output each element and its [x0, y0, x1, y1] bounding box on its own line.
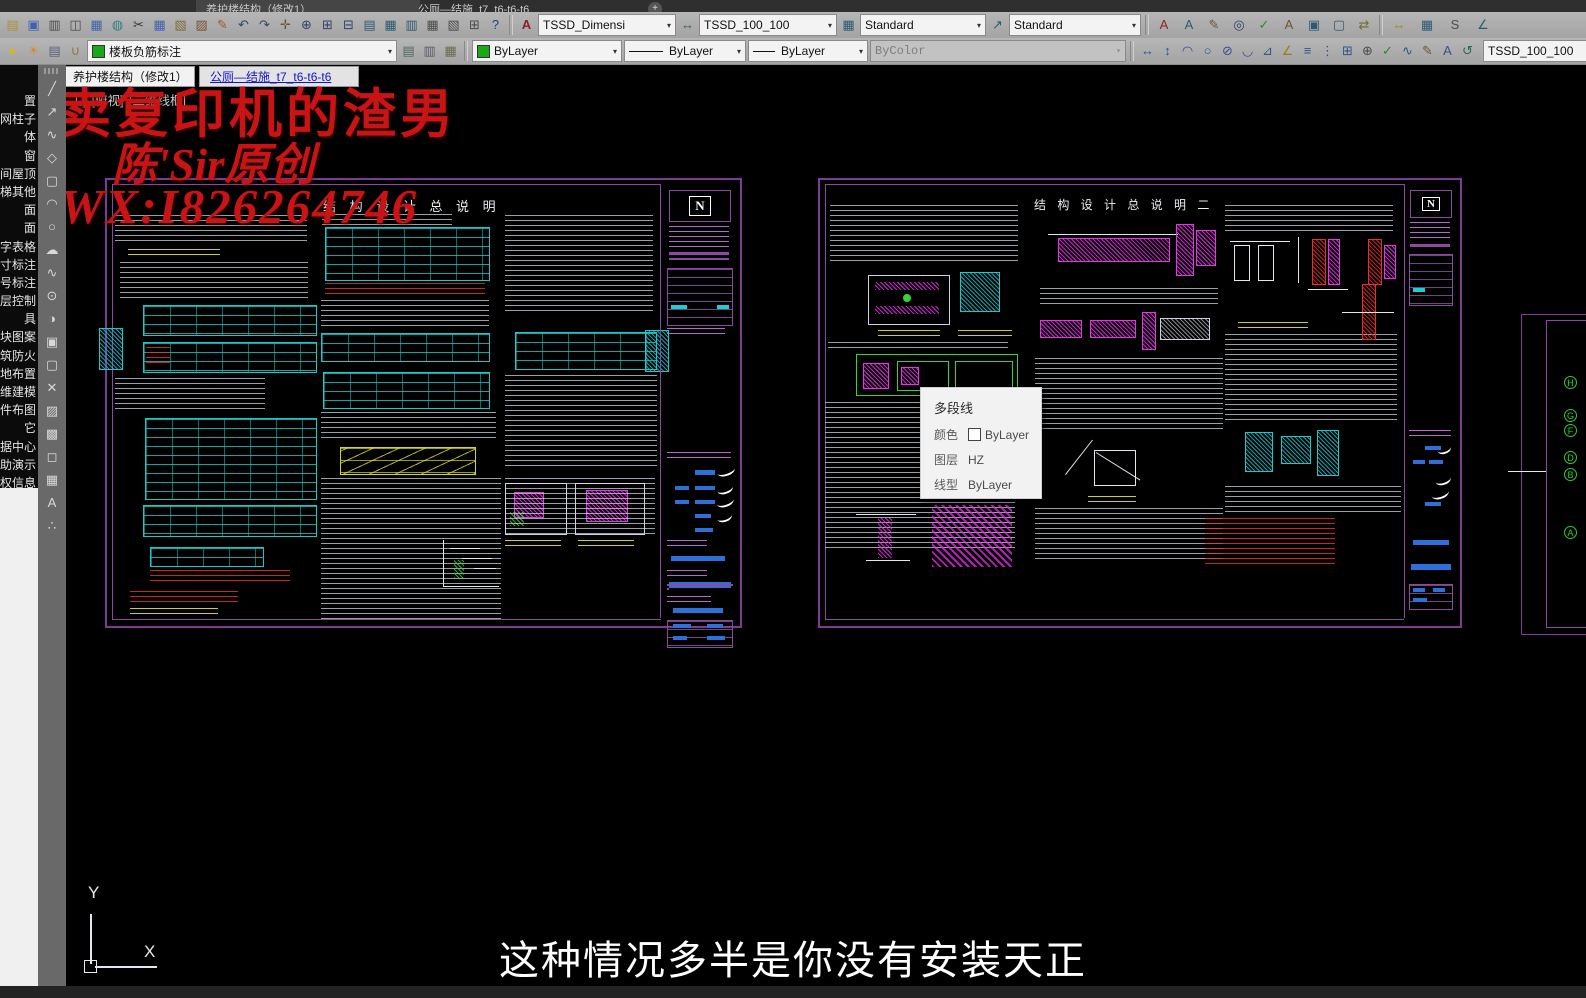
color-dropdown[interactable]: ByLayer▾: [472, 40, 622, 62]
titleblock-project-bar: [671, 556, 725, 561]
watermark-line-3: WX:I826264746: [60, 178, 418, 235]
sheet1-red-note-2: [130, 591, 238, 605]
screen-menu-item[interactable]: 寸标注: [0, 256, 38, 274]
ellipse-arc-icon[interactable]: ◑: [41, 308, 63, 330]
titleblock-cyan-bar-1: [671, 305, 687, 309]
zoom-realtime-icon[interactable]: ⊕: [297, 15, 316, 35]
entity-rollover-tooltip: 多段线 颜色 ByLayer 图层 HZ 线型 ByLayer: [920, 387, 1042, 499]
sheet1-titleblock: N: [660, 184, 737, 618]
sheet1-table-seismic: [143, 305, 317, 336]
grid-bubble: H: [1564, 376, 1577, 389]
mleader-style-manager-icon[interactable]: ↗: [988, 15, 1007, 35]
ucs-x-axis: [95, 966, 157, 968]
text-style-manager-icon[interactable]: A: [517, 15, 536, 35]
dim-aligned-icon[interactable]: ↕: [1158, 41, 1177, 61]
dim-angular-icon[interactable]: ⊿: [1258, 41, 1277, 61]
grid-bubble: A: [1564, 526, 1577, 539]
sheet2-notes-mid-2: [1035, 358, 1223, 430]
dim-style-manager-icon[interactable]: ↔: [678, 15, 697, 35]
mtext-a-icon[interactable]: A: [41, 492, 63, 514]
screen-menu-item[interactable]: 窗: [0, 147, 38, 165]
layer-dropdown[interactable]: 楼板负筋标注▾: [87, 40, 397, 62]
tooltip-color-label: 颜色: [934, 426, 968, 443]
move-text-icon[interactable]: ⇄: [1353, 15, 1375, 35]
cut-icon[interactable]: ✂: [129, 15, 148, 35]
sheet2-detail-cyan-group: [1245, 428, 1341, 478]
dim-space-icon[interactable]: ⊞: [1338, 41, 1357, 61]
screen-menu-item[interactable]: 维建模: [0, 383, 38, 401]
paste-block-icon[interactable]: ▨: [192, 15, 211, 35]
sheet2-detail-triangle: [1086, 436, 1144, 490]
sheet2-caption-1: [878, 330, 940, 337]
eplot-icon[interactable]: ▦: [87, 15, 106, 35]
sheet1-yellow-note-2: [130, 608, 218, 616]
draw-toolbar: ╱↗∿◇▢◠○☁∿⊙◑▣▢✕▨▩◻▦A∴: [38, 64, 66, 986]
open-icon[interactable]: ▤: [3, 15, 22, 35]
dim-jog-line-icon[interactable]: ∿: [1398, 41, 1417, 61]
application-window: 养护楼结构（修改1） 公厕—结施_t7_t6-t6-t6 [-] [俯视] [二…: [0, 0, 1586, 998]
xline-icon[interactable]: ↗: [41, 101, 63, 123]
grid-bubble: F: [1564, 424, 1577, 437]
spell-check-icon[interactable]: ✓: [1253, 15, 1275, 35]
screen-menu-item[interactable]: 面: [0, 201, 38, 219]
screen-menu-item[interactable]: 具: [0, 310, 38, 328]
sheet2-title: 结 构 设 计 总 说 明 二: [1034, 196, 1213, 213]
circle-icon[interactable]: ○: [41, 216, 63, 238]
sheet1-table-atlas: [143, 505, 317, 537]
line-icon[interactable]: ╱: [41, 78, 63, 100]
tssd-copy-icon[interactable]: ▦: [1415, 15, 1439, 35]
screen-menu-item[interactable]: 据中心: [0, 438, 38, 456]
sheet1-notes-right-3: [505, 478, 655, 536]
layers-properties-toolbar: ●☀▤∪ 楼板负筋标注▾ ▤▥▦ ByLayer▾ ByLayer▾ ByLay…: [0, 38, 1586, 65]
design-center-icon[interactable]: ▦: [381, 15, 400, 35]
sheet1-detail-a-caption: [505, 540, 561, 546]
screen-menu-item[interactable]: 块图案: [0, 328, 38, 346]
sheet1-table-codes: [145, 418, 317, 500]
sheet2-caption-4: [1238, 322, 1308, 329]
titleblock2-logo: N: [1422, 197, 1440, 211]
sheet1-margin-tag-left: [99, 328, 123, 370]
grid-bubble: B: [1564, 468, 1577, 481]
tooltip-layer-value: HZ: [968, 453, 984, 467]
sheet-set-manager-icon[interactable]: ▦: [423, 15, 442, 35]
linetype-dropdown[interactable]: ByLayer▾: [624, 40, 746, 62]
toolbar-separator: [509, 15, 513, 35]
layer-on-bulb-icon[interactable]: ●: [3, 41, 22, 61]
dim-radius-icon[interactable]: ○: [1198, 41, 1217, 61]
sheet1-red-note-1: [150, 570, 290, 584]
mleader-style-dropdown[interactable]: Standard▾: [1009, 14, 1141, 36]
plot-icon[interactable]: ▥: [45, 15, 64, 35]
lineweight-value: ByLayer: [781, 44, 825, 58]
grid-bubble: D: [1564, 451, 1577, 464]
tssd-toolbar-icons: ↔▦S∠: [1387, 15, 1495, 35]
text-style-icon[interactable]: A: [1153, 15, 1175, 35]
tssd-angle-icon[interactable]: ∠: [1471, 15, 1495, 35]
titleblock-company-text: [669, 226, 729, 248]
sheet2-detail-floor: [1038, 310, 1216, 352]
region-icon[interactable]: ◻: [41, 446, 63, 468]
screen-menu-item[interactable]: 号标注: [0, 274, 38, 292]
dim-text-edit-icon[interactable]: A: [1438, 41, 1457, 61]
layer-states-icon[interactable]: ▤: [399, 41, 418, 61]
polygon-icon[interactable]: ◇: [41, 147, 63, 169]
dim-check-icon[interactable]: ✓: [1378, 41, 1397, 61]
find-text-icon[interactable]: ◎: [1228, 15, 1250, 35]
sheet2-notes-right-2: [1225, 334, 1397, 422]
screen-menu-item[interactable]: 地布置: [0, 365, 38, 383]
divide-icon[interactable]: ∴: [41, 515, 63, 537]
linetype-value: ByLayer: [669, 44, 713, 58]
sheet1-table-red-cell: [146, 347, 170, 365]
publish-icon[interactable]: ◍: [108, 15, 127, 35]
sheet2-detail-pier: [1338, 282, 1398, 340]
dim-break-icon[interactable]: ⊕: [1358, 41, 1377, 61]
match-properties-icon[interactable]: ✎: [213, 15, 232, 35]
zoom-window-icon[interactable]: ⊞: [318, 15, 337, 35]
sheet1-notes-2: [120, 262, 308, 302]
screen-menu-item[interactable]: 筑防火: [0, 347, 38, 365]
properties-palette-icon[interactable]: ▤: [360, 15, 379, 35]
sheet2-notes-left-2: [828, 342, 1008, 350]
layer-settings-icon[interactable]: ▤: [45, 41, 64, 61]
paste-icon[interactable]: ▧: [171, 15, 190, 35]
undo-icon[interactable]: ↶: [234, 15, 253, 35]
window-bottom-edge: [0, 986, 1586, 998]
toolbar-separator: [1145, 15, 1149, 35]
color-swatch-icon: [968, 428, 981, 441]
sheet1-notes-mid-2: [321, 412, 496, 442]
file-tab-other[interactable]: 公厕—结施_t7_t6-t6-t6: [408, 0, 638, 12]
dim-jogged-icon[interactable]: ⊘: [1218, 41, 1237, 61]
draw-toolbar-icons: ╱↗∿◇▢◠○☁∿⊙◑▣▢✕▨▩◻▦A∴: [41, 78, 63, 538]
text-style-value: TSSD_Dimensi: [543, 18, 625, 32]
rectangle-icon[interactable]: ▢: [41, 170, 63, 192]
plot-style-dropdown: ByColor▾: [870, 40, 1126, 62]
screen-menu-item[interactable]: 面: [0, 219, 38, 237]
text-toolbar-icons: AA✎◎✓A▣▢⇄: [1153, 15, 1375, 35]
pan-icon[interactable]: ✛: [276, 15, 295, 35]
standard-toolbar: ▤▣▥◫▦◍✂▦▧▨✎↶↷✛⊕⊞⊟▤▦▥▦▧⊞? A TSSD_Dimensi▾…: [0, 12, 1586, 39]
toolbar-separator: [1379, 15, 1383, 35]
tssd-dim-style-dropdown[interactable]: TSSD_100_100▾: [1483, 40, 1586, 62]
titleblock2-rows: [1409, 254, 1453, 306]
sheet3-grid-bubbles: HGFDBA: [1564, 370, 1586, 570]
sheet1-table-yellow: [340, 447, 476, 475]
screen-menu-item[interactable]: 间屋顶: [0, 165, 38, 183]
grid-bubble: G: [1564, 409, 1577, 422]
copy-icon[interactable]: ▦: [150, 15, 169, 35]
color-value: ByLayer: [494, 44, 538, 58]
sheet1-notes-3: [115, 378, 265, 410]
markup-manager-icon[interactable]: ▧: [444, 15, 463, 35]
make-block-icon[interactable]: ▢: [41, 354, 63, 376]
screen-menu-panel-empty: [0, 488, 38, 988]
sheet1-table-small: [150, 547, 264, 567]
plot-preview-icon[interactable]: ◫: [66, 15, 85, 35]
linetype-glyph-icon: [629, 51, 663, 52]
screen-menu-item[interactable]: 梯其他: [0, 183, 38, 201]
titleblock2-company-text: [1410, 222, 1450, 240]
dim-style-value: TSSD_100_100: [704, 18, 789, 32]
text-frame-icon[interactable]: ▣: [1303, 15, 1325, 35]
tooltip-entity-type: 多段线: [934, 398, 1041, 417]
sheet2-notes-left-1: [830, 205, 1018, 261]
sheet1-table-top-mid: [325, 227, 490, 281]
dim-edit-icon[interactable]: ✎: [1418, 41, 1437, 61]
sheet1-notes-right-2: [505, 375, 657, 467]
spline-icon[interactable]: ∿: [41, 262, 63, 284]
sheet2-detail-wall: [960, 272, 1000, 312]
sheet2-caption-2: [958, 330, 1012, 337]
sheet1-yellow-note: [128, 249, 220, 257]
dim-update-icon[interactable]: ↺: [1458, 41, 1477, 61]
dim-diameter-icon[interactable]: ◡: [1238, 41, 1257, 61]
tooltip-layer-label: 图层: [934, 451, 968, 468]
ellipse-icon[interactable]: ⊙: [41, 285, 63, 307]
screen-menu-item[interactable]: 网柱子: [0, 110, 38, 128]
sheet2-detail-slab: [868, 275, 950, 325]
layer-previous-icon[interactable]: ▥: [420, 41, 439, 61]
titleblock-cyan-bar-2: [717, 305, 729, 309]
mleader-style-value: Standard: [1014, 18, 1063, 32]
screen-menu-item[interactable]: 它: [0, 419, 38, 437]
dim-continue-icon[interactable]: ⋮: [1318, 41, 1337, 61]
hatch-icon[interactable]: ▨: [41, 400, 63, 422]
revcloud-icon[interactable]: ☁: [41, 239, 63, 261]
layer-tool-icons: ▤▥▦: [399, 41, 460, 61]
text-match-icon[interactable]: A: [1278, 15, 1300, 35]
point-icon[interactable]: ✕: [41, 377, 63, 399]
tool-palettes-icon[interactable]: ▥: [402, 15, 421, 35]
sheet1-table-right: [515, 332, 657, 370]
sheet1-table-concrete: [321, 333, 490, 362]
tooltip-color-value: ByLayer: [985, 428, 1029, 442]
dim-baseline-icon[interactable]: ≡: [1298, 41, 1317, 61]
screen-menu-item[interactable]: 置: [0, 92, 38, 110]
video-subtitle: 这种情况多半是你没有安装天正: [499, 928, 1087, 986]
screen-menu-panel: 置网柱子体窗间屋顶梯其他面面字表格寸标注号标注层控制具块图案筑防火地布置维建模件…: [0, 64, 38, 488]
sheet2-notes-right-3: [1225, 486, 1401, 512]
edit-text-icon[interactable]: ✎: [1203, 15, 1225, 35]
layer-unlock-icon[interactable]: ∪: [66, 41, 85, 61]
gradient-icon[interactable]: ▩: [41, 423, 63, 445]
text-mask-icon[interactable]: ▢: [1328, 15, 1350, 35]
dim-arc-icon[interactable]: ◠: [1178, 41, 1197, 61]
titleblock-rows: [667, 268, 733, 326]
sheet3-tick: [1508, 471, 1546, 472]
help-icon[interactable]: ?: [486, 15, 505, 35]
lineweight-glyph-icon: [753, 51, 775, 52]
sheet1-red-warning: [325, 283, 485, 296]
table-style-value: Standard: [865, 18, 914, 32]
sheet2-caption-3: [1088, 496, 1136, 503]
ucs-y-axis: [90, 914, 92, 964]
sheet2-notes-mid-3: [1035, 508, 1223, 563]
layer-thaw-sun-icon[interactable]: ☀: [24, 41, 43, 61]
plot-style-value: ByColor: [875, 44, 925, 58]
screen-menu-item[interactable]: 层控制: [0, 292, 38, 310]
dim-style-dropdown[interactable]: TSSD_100_100▾: [699, 14, 837, 36]
screen-menu-item[interactable]: 助演示: [0, 456, 38, 474]
polyline-icon[interactable]: ∿: [41, 124, 63, 146]
sheet1-detail-b-caption: [578, 540, 634, 546]
toolbar-grip-handle[interactable]: [44, 68, 60, 74]
sheet2-red-note-block: [1205, 518, 1335, 564]
layer-status-icons: ●☀▤∪: [3, 41, 85, 61]
sheet2-detail-t-section: [856, 508, 922, 566]
redo-icon[interactable]: ↷: [255, 15, 274, 35]
quickcalc-icon[interactable]: ⊞: [465, 15, 484, 35]
table-style-manager-icon[interactable]: ▦: [839, 15, 858, 35]
dimension-toolbar-icons: ↔↕◠○⊘◡⊿∠≡⋮⊞⊕✓∿✎A↺: [1138, 41, 1477, 61]
drawing-canvas[interactable]: 养护楼结构（修改1） 公厕—结施_t7_t6-t6-t6 [-] [俯视] [二…: [0, 0, 1586, 998]
arc-icon[interactable]: ◠: [41, 193, 63, 215]
sheet1-notes-right-1: [505, 215, 653, 313]
save-icon[interactable]: ▣: [24, 15, 43, 35]
text-style-dropdown[interactable]: TSSD_Dimensi▾: [538, 14, 676, 36]
screen-menu-item[interactable]: 体: [0, 128, 38, 146]
quick-dim-icon[interactable]: ∠: [1278, 41, 1297, 61]
toolbar-separator: [464, 41, 468, 61]
ucs-x-label: X: [144, 942, 155, 962]
current-color-swatch-icon: [477, 45, 490, 58]
toolbar-separator: [1130, 41, 1134, 61]
new-tab-button[interactable]: +: [648, 2, 662, 12]
table-icon[interactable]: ▦: [41, 469, 63, 491]
tooltip-linetype-label: 线型: [934, 476, 968, 493]
standard-toolbar-icons: ▤▣▥◫▦◍✂▦▧▨✎↶↷✛⊕⊞⊟▤▦▥▦▧⊞?: [3, 15, 505, 35]
lineweight-dropdown[interactable]: ByLayer▾: [748, 40, 868, 62]
file-tab-bar: 养护楼结构（修改1） 公厕—结施_t7_t6-t6-t6 +: [0, 0, 1586, 12]
sheet2-detail-hatch-big: [932, 505, 1012, 567]
table-style-dropdown[interactable]: Standard▾: [860, 14, 986, 36]
titleblock-sign-header: [667, 452, 731, 462]
titleblock-logo: N: [689, 196, 710, 216]
layer-color-swatch-icon: [92, 45, 105, 58]
zoom-previous-icon[interactable]: ⊟: [339, 15, 358, 35]
sheet1-table-rebar: [323, 372, 490, 409]
sheet1-stair-detail: [443, 540, 499, 587]
file-tab-active[interactable]: 养护楼结构（修改1）: [196, 0, 420, 12]
screen-menu-item[interactable]: 件布图: [0, 401, 38, 419]
screen-menu-item[interactable]: 字表格: [0, 238, 38, 256]
tssd-dim-style-value: TSSD_100_100: [1488, 44, 1573, 58]
dim-linear-icon[interactable]: ↔: [1138, 41, 1157, 61]
tooltip-linetype-value: ByLayer: [968, 478, 1012, 492]
ucs-y-label: Y: [88, 883, 99, 903]
tssd-dim-icon[interactable]: ↔: [1387, 15, 1411, 35]
layer-name-value: 楼板负筋标注: [109, 43, 181, 60]
layer-match-icon[interactable]: ▦: [441, 41, 460, 61]
sheet1-notes-mid-1: [321, 300, 489, 326]
sheet2-titleblock: N: [1404, 184, 1457, 618]
insert-block-icon[interactable]: ▣: [41, 331, 63, 353]
sheet2-notes-right-1: [1225, 205, 1393, 231]
sheet2-notes-mid-1: [1040, 288, 1218, 306]
mtext-icon[interactable]: A: [1178, 15, 1200, 35]
sheet2-detail-beam: [1048, 222, 1216, 280]
tssd-scroll-icon[interactable]: S: [1443, 15, 1467, 35]
